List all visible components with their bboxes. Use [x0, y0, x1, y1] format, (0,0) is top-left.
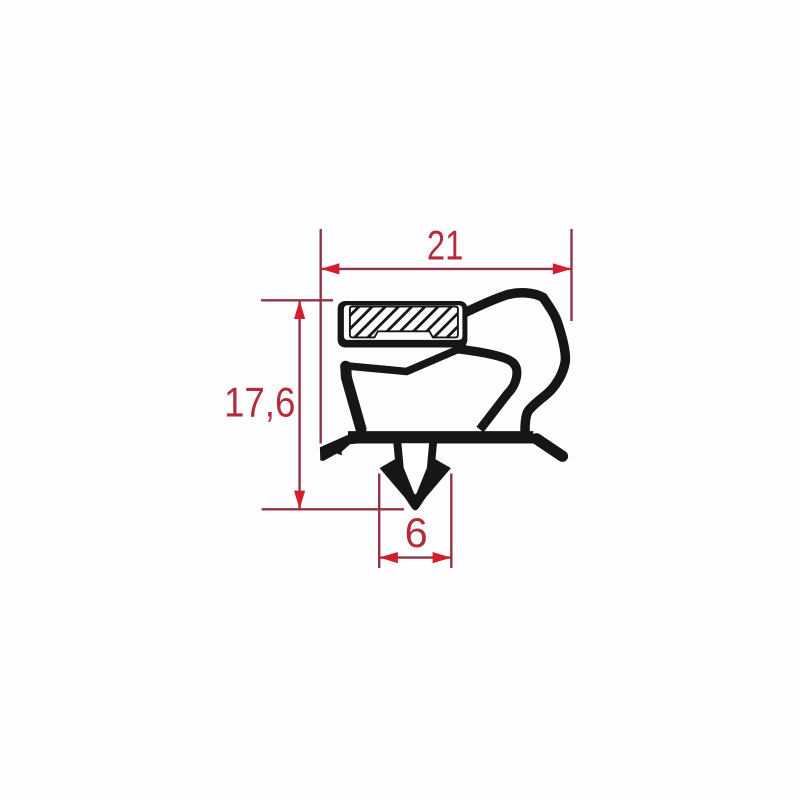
svg-text:21: 21	[427, 222, 463, 269]
svg-text:17,6: 17,6	[224, 381, 295, 427]
svg-text:6: 6	[405, 509, 428, 556]
